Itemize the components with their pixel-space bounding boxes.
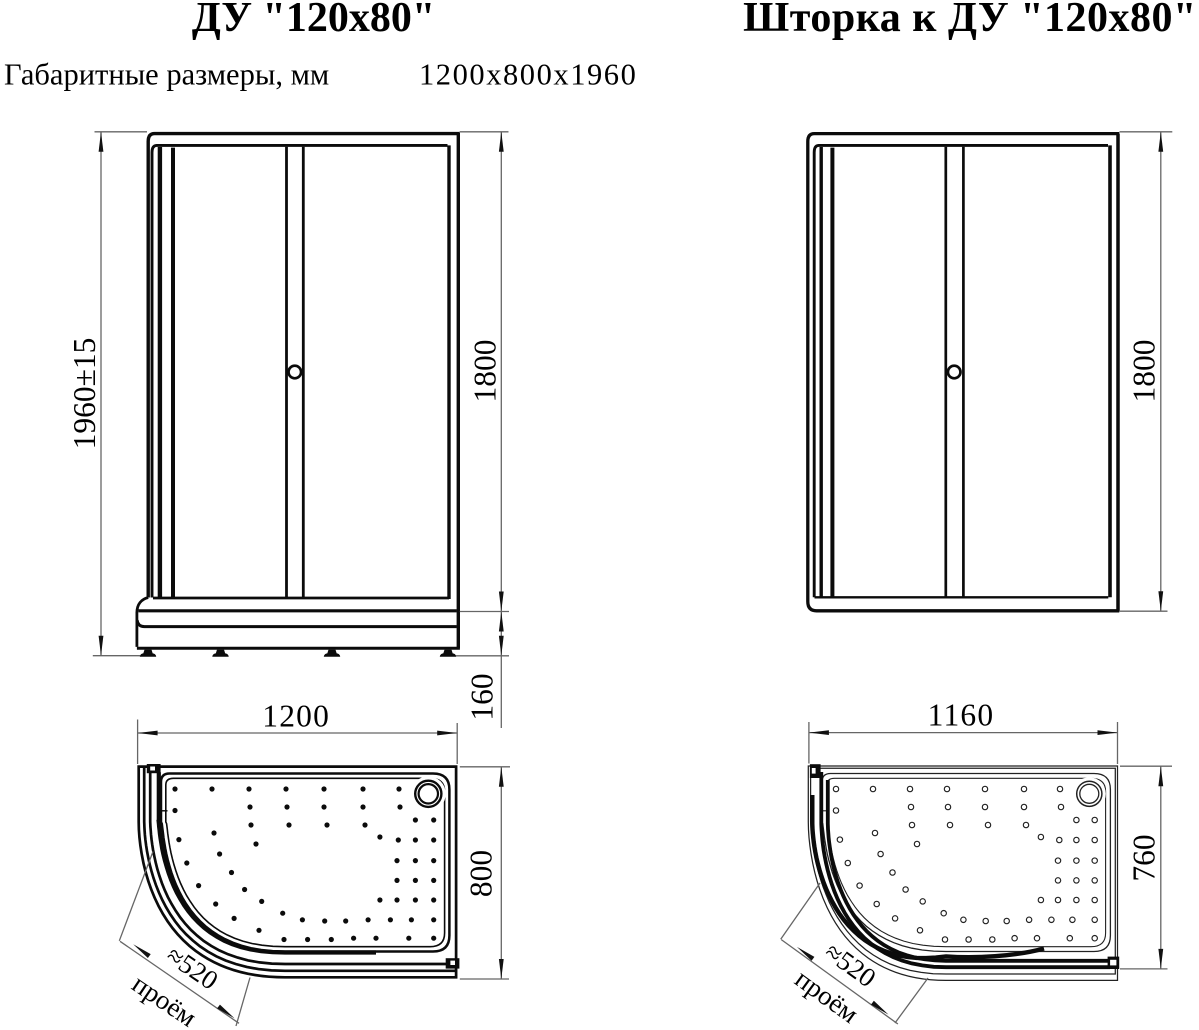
- svg-text:Шторка к ДУ "120x80": Шторка к ДУ "120x80": [743, 0, 1197, 41]
- svg-text:800: 800: [463, 850, 498, 897]
- svg-text:1160: 1160: [928, 698, 995, 733]
- svg-text:1800: 1800: [468, 340, 503, 403]
- svg-text:1200x800x1960: 1200x800x1960: [419, 58, 637, 92]
- svg-text:Габаритные размеры, мм: Габаритные размеры, мм: [4, 58, 329, 92]
- svg-text:1200: 1200: [262, 699, 330, 734]
- svg-text:1960±15: 1960±15: [67, 338, 102, 450]
- svg-text:760: 760: [1127, 834, 1162, 881]
- svg-text:160: 160: [465, 673, 500, 720]
- svg-text:ДУ "120x80": ДУ "120x80": [192, 0, 435, 41]
- svg-text:1800: 1800: [1127, 340, 1162, 403]
